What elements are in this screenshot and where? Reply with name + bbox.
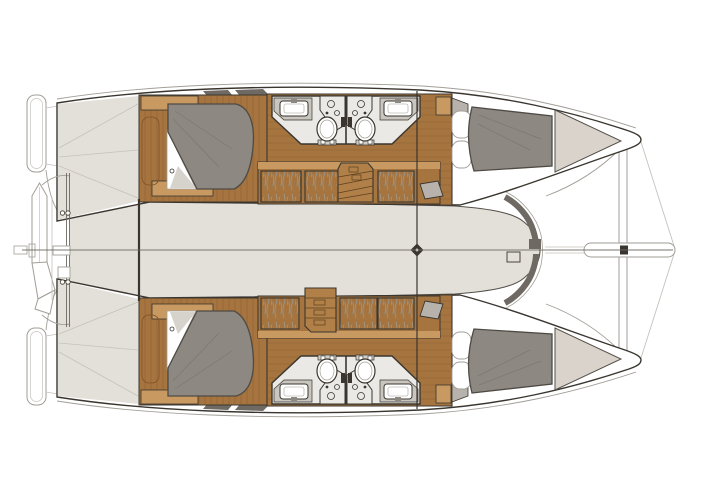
anchor-chute bbox=[529, 239, 541, 249]
wardrobe bbox=[340, 298, 377, 329]
davit-fitting bbox=[66, 211, 70, 215]
wardrobe bbox=[378, 171, 414, 202]
wardrobe bbox=[378, 298, 414, 329]
wardrobe bbox=[261, 171, 301, 202]
floor-plan-figure bbox=[0, 0, 706, 500]
catamaran-floor-plan bbox=[0, 0, 706, 500]
davit-fitting bbox=[60, 211, 64, 215]
locker-top-trim bbox=[258, 331, 440, 338]
port-lockers-row bbox=[258, 288, 443, 338]
davit-fitting bbox=[66, 280, 70, 284]
wardrobe bbox=[261, 298, 299, 329]
wardrobe bbox=[305, 171, 338, 202]
davit-fitting bbox=[60, 280, 64, 284]
stern-fitting bbox=[53, 246, 70, 255]
davit-bracket bbox=[58, 267, 70, 278]
starboard-lockers-row bbox=[258, 162, 443, 204]
